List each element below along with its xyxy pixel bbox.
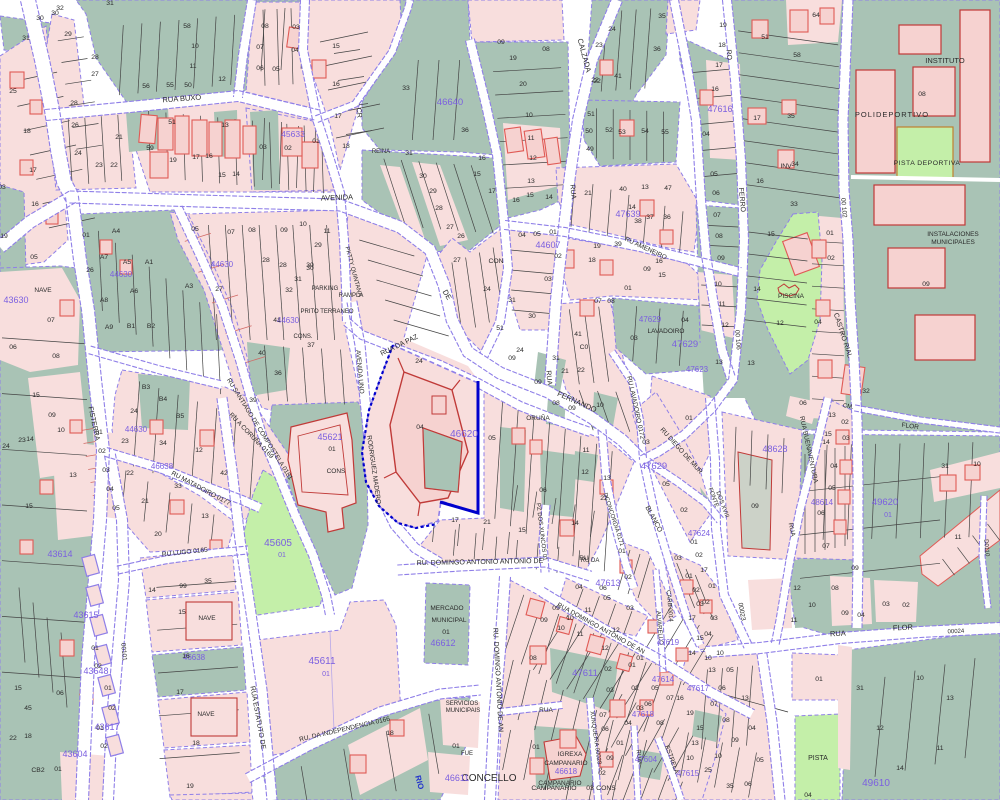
svg-text:25: 25 [9,88,17,95]
svg-text:01: 01 [826,230,834,237]
svg-text:15: 15 [178,609,186,616]
svg-text:04: 04 [575,584,583,591]
svg-text:03: 03 [882,601,890,608]
svg-text:INSTALACIONES: INSTALACIONES [927,231,979,238]
svg-text:05: 05 [191,226,199,233]
svg-text:24: 24 [2,443,10,450]
svg-text:47629: 47629 [641,461,667,472]
svg-text:14: 14 [571,520,579,527]
svg-text:11: 11 [584,607,591,614]
svg-text:09: 09 [643,266,651,273]
svg-text:01: 01 [708,583,716,590]
svg-text:04: 04 [518,232,526,239]
svg-text:28: 28 [70,100,78,107]
svg-text:44630: 44630 [125,425,148,434]
svg-text:26: 26 [86,267,94,274]
svg-text:36: 36 [461,127,469,134]
svg-text:05: 05 [651,685,659,692]
svg-text:35: 35 [787,113,795,120]
svg-text:12: 12 [218,76,226,83]
svg-text:15: 15 [25,503,33,510]
svg-text:09: 09 [851,565,859,572]
svg-text:16: 16 [512,197,520,204]
svg-text:15: 15 [696,635,704,642]
svg-text:17: 17 [715,62,723,69]
svg-text:37: 37 [646,214,654,221]
svg-text:41: 41 [574,331,582,338]
svg-text:36: 36 [663,214,671,221]
svg-text:26: 26 [457,233,465,240]
svg-text:20: 20 [519,81,527,88]
svg-text:01: 01 [815,676,823,683]
svg-text:03: 03 [102,467,110,474]
svg-text:A5: A5 [123,259,132,266]
svg-text:02: 02 [692,587,700,594]
svg-text:24: 24 [516,347,524,354]
svg-text:PARKING: PARKING [312,286,339,292]
svg-text:16: 16 [31,201,39,208]
svg-text:04: 04 [857,612,865,619]
svg-text:38: 38 [634,218,642,225]
svg-text:02: 02 [108,705,116,712]
svg-text:15: 15 [824,431,832,438]
svg-text:46611: 46611 [445,773,469,783]
svg-text:45633: 45633 [281,129,305,139]
svg-text:31: 31 [941,463,949,470]
svg-text:16: 16 [182,653,190,660]
svg-text:IGREXA: IGREXA [558,751,583,758]
svg-text:11: 11 [527,135,534,142]
svg-text:AVENIDA: AVENIDA [321,192,354,202]
svg-text:47629: 47629 [672,339,698,350]
svg-text:43630: 43630 [3,295,28,305]
svg-text:00024: 00024 [947,629,965,636]
svg-text:17: 17 [488,188,496,195]
svg-text:01: 01 [532,744,540,751]
svg-text:MUNICIPAL: MUNICIPAL [432,617,467,624]
svg-text:02: 02 [695,552,703,559]
svg-text:03: 03 [586,785,594,792]
svg-text:01: 01 [312,138,320,145]
svg-text:13: 13 [741,695,749,702]
svg-text:05: 05 [603,595,611,602]
svg-text:07: 07 [666,695,674,702]
svg-text:47: 47 [664,185,672,192]
svg-text:A1: A1 [145,259,154,266]
svg-text:64: 64 [812,12,820,19]
svg-text:12: 12 [776,320,784,327]
svg-text:MERCADO: MERCADO [430,605,463,612]
svg-text:A8: A8 [100,297,109,304]
svg-text:23: 23 [95,162,103,169]
svg-text:52: 52 [605,127,613,134]
svg-text:04: 04 [704,631,712,638]
svg-text:39: 39 [614,241,622,248]
svg-text:44630: 44630 [110,270,133,279]
svg-text:47615: 47615 [677,769,700,778]
svg-text:22: 22 [600,495,608,502]
svg-text:02: 02 [702,599,710,606]
svg-text:04: 04 [748,725,756,732]
svg-text:05: 05 [710,171,718,178]
svg-text:09: 09 [731,737,739,744]
svg-text:28: 28 [262,257,270,264]
svg-text:15: 15 [32,392,40,399]
svg-text:12: 12 [612,627,620,634]
svg-text:47616: 47616 [707,104,732,114]
svg-text:30: 30 [306,262,314,269]
svg-text:43614: 43614 [47,549,72,559]
svg-text:18: 18 [342,143,350,150]
svg-text:22: 22 [9,735,17,742]
svg-text:RUA: RUA [539,707,553,714]
svg-text:02: 02 [902,602,910,609]
svg-text:01: 01 [54,766,62,773]
svg-text:18: 18 [24,733,32,740]
svg-text:31: 31 [552,355,560,362]
svg-text:08: 08 [529,655,537,662]
svg-text:07: 07 [822,543,830,550]
svg-text:03: 03 [636,705,644,712]
svg-text:13: 13 [221,122,229,129]
svg-text:09: 09 [606,755,614,762]
svg-text:27: 27 [91,71,99,78]
svg-text:RUA: RUA [568,184,576,200]
svg-text:MUNICIPAIS: MUNICIPAIS [446,708,481,714]
svg-text:02: 02 [94,663,102,670]
svg-text:A4: A4 [112,228,121,235]
svg-text:15: 15 [767,231,775,238]
svg-text:11: 11 [582,447,589,454]
svg-text:09: 09 [552,605,560,612]
svg-text:16: 16 [332,81,340,88]
svg-text:17: 17 [688,615,696,622]
svg-text:44630: 44630 [211,260,234,269]
svg-text:13: 13 [828,412,836,419]
svg-text:49620: 49620 [872,497,898,508]
svg-text:34: 34 [791,161,799,168]
svg-text:RUA: RUA [830,629,846,639]
svg-text:15: 15 [518,527,526,534]
svg-text:06: 06 [817,510,825,517]
svg-text:19: 19 [186,783,194,790]
svg-text:51: 51 [761,34,769,41]
svg-text:22: 22 [110,162,118,169]
svg-text:10: 10 [714,281,722,288]
svg-text:01: 01 [91,645,99,652]
svg-text:04: 04 [830,463,838,470]
svg-text:09: 09 [497,39,505,46]
svg-text:02: 02 [631,685,639,692]
svg-text:23: 23 [595,42,603,49]
svg-text:CONS: CONS [327,468,346,475]
svg-text:NAVE: NAVE [34,287,52,294]
svg-text:16: 16 [478,155,486,162]
svg-text:03: 03 [0,184,6,191]
svg-text:PRITO TERRANEO: PRITO TERRANEO [300,309,353,315]
svg-text:12: 12 [876,725,884,732]
svg-text:10: 10 [916,675,924,682]
svg-text:08: 08 [656,720,664,727]
svg-text:28: 28 [91,54,99,61]
svg-text:01: 01 [628,662,636,669]
svg-text:03: 03 [642,439,650,446]
svg-text:12: 12 [721,322,729,329]
svg-text:05: 05 [756,757,764,764]
svg-text:24: 24 [415,358,423,365]
svg-text:46620: 46620 [450,429,478,440]
svg-text:46640: 46640 [437,97,463,108]
svg-text:29: 29 [429,188,437,195]
svg-text:07: 07 [227,229,235,236]
svg-text:10: 10 [973,461,981,468]
svg-text:51: 51 [496,325,504,332]
svg-text:01: 01 [616,740,624,747]
svg-text:43615: 43615 [73,610,98,620]
svg-text:20: 20 [154,531,162,538]
svg-text:POLIDEPORTIVO: POLIDEPORTIVO [855,110,929,119]
svg-text:RO: RO [725,49,733,61]
svg-text:16: 16 [676,695,684,702]
svg-text:10: 10 [808,602,816,609]
svg-text:01: 01 [278,552,286,559]
svg-text:10: 10 [191,43,199,50]
svg-text:35: 35 [726,783,734,790]
svg-text:43604: 43604 [62,749,87,759]
svg-text:PISCINA: PISCINA [778,293,805,300]
svg-text:CONCELLO: CONCELLO [461,773,516,784]
svg-text:37: 37 [307,342,315,349]
svg-text:FLOR: FLOR [893,622,914,632]
svg-text:04: 04 [291,47,299,54]
svg-text:07: 07 [713,212,721,219]
svg-text:55: 55 [661,129,669,136]
svg-text:46618: 46618 [555,767,578,776]
svg-text:17: 17 [753,115,761,122]
svg-text:21: 21 [115,134,123,141]
svg-text:03: 03 [674,555,682,562]
svg-text:06: 06 [56,690,64,697]
svg-text:99: 99 [179,583,187,590]
svg-text:31: 31 [106,0,114,7]
svg-text:19: 19 [593,243,601,250]
svg-text:04: 04 [804,792,812,799]
svg-text:21: 21 [483,519,491,526]
svg-text:10: 10 [704,655,712,662]
svg-text:07: 07 [599,712,607,719]
svg-text:35: 35 [658,13,666,20]
svg-text:09: 09 [717,255,725,262]
svg-text:RUA: RUA [544,370,552,386]
svg-text:15: 15 [14,685,22,692]
svg-text:11: 11 [936,745,943,752]
svg-text:FUE: FUE [461,751,473,757]
svg-text:06: 06 [799,400,807,407]
svg-text:50: 50 [184,82,192,89]
svg-text:02: 02 [624,574,632,581]
svg-text:10: 10 [557,625,565,632]
svg-text:06: 06 [601,726,609,733]
svg-text:36: 36 [274,370,282,377]
svg-text:59: 59 [146,145,154,152]
svg-text:25: 25 [704,767,712,774]
svg-text:48614: 48614 [811,498,834,507]
svg-text:12: 12 [581,469,589,476]
svg-text:24: 24 [130,408,138,415]
svg-text:16: 16 [655,258,663,265]
svg-text:SERVICIOS: SERVICIOS [446,701,479,707]
svg-text:05: 05 [488,435,496,442]
svg-text:47624: 47624 [688,529,711,538]
svg-text:33: 33 [402,85,410,92]
svg-text:13: 13 [708,667,716,674]
svg-text:17: 17 [700,567,708,574]
svg-text:19: 19 [169,157,177,164]
svg-text:58: 58 [183,23,191,30]
svg-text:C0: C0 [580,344,589,351]
svg-text:22: 22 [126,470,134,477]
svg-text:51: 51 [168,119,176,126]
svg-text:CAMPANARIO: CAMPANARIO [544,760,587,767]
svg-text:29: 29 [314,242,322,249]
svg-text:03: 03 [710,615,718,622]
svg-text:16: 16 [711,86,719,93]
svg-text:CONS.: CONS. [293,334,312,340]
svg-text:08: 08 [52,353,60,360]
svg-text:19: 19 [686,710,694,717]
svg-text:14: 14 [232,171,240,178]
svg-text:13: 13 [715,359,723,366]
svg-text:02: 02 [98,448,106,455]
svg-text:15: 15 [526,192,534,199]
svg-text:03: 03 [842,435,850,442]
svg-text:53: 53 [618,129,626,136]
svg-text:06: 06 [644,701,652,708]
svg-text:05: 05 [30,254,38,261]
svg-text:NAVE: NAVE [198,615,216,622]
svg-text:12: 12 [529,155,537,162]
svg-text:13: 13 [747,360,755,367]
svg-text:32: 32 [862,388,870,395]
svg-text:08: 08 [918,91,926,98]
svg-text:19: 19 [0,233,8,240]
svg-text:31: 31 [856,685,864,692]
svg-text:06: 06 [599,585,607,592]
svg-text:08: 08 [607,298,615,305]
svg-text:09: 09 [540,617,548,624]
svg-text:08: 08 [552,400,560,407]
svg-text:09: 09 [508,355,516,362]
svg-text:NAVE: NAVE [197,711,215,718]
svg-text:02: 02 [100,743,108,750]
svg-text:10: 10 [714,753,722,760]
svg-text:21: 21 [584,190,592,197]
svg-text:28: 28 [279,262,287,269]
svg-text:02: 02 [841,419,849,426]
svg-text:LAVADOIRO: LAVADOIRO [648,328,685,335]
svg-text:49: 49 [586,146,594,153]
svg-text:17: 17 [29,167,37,174]
svg-text:21: 21 [141,498,149,505]
svg-text:11: 11 [954,534,961,541]
svg-text:03: 03 [630,335,638,342]
svg-text:03: 03 [626,605,634,612]
svg-text:09: 09 [534,379,542,386]
svg-text:50: 50 [585,128,593,135]
svg-text:10: 10 [686,755,694,762]
svg-text:14: 14 [753,286,761,293]
svg-text:12: 12 [195,447,203,454]
svg-text:46638: 46638 [151,462,174,471]
svg-text:14: 14 [148,587,156,594]
svg-text:47611: 47611 [572,668,598,679]
svg-text:02: 02 [554,253,562,260]
svg-text:14: 14 [545,194,553,201]
svg-text:CR: CR [355,108,363,119]
svg-text:15: 15 [473,171,481,178]
svg-text:A3: A3 [185,283,194,290]
svg-text:27: 27 [215,286,223,293]
svg-text:13: 13 [201,513,209,520]
svg-text:09: 09 [48,412,56,419]
svg-text:08: 08 [722,717,730,724]
svg-text:09: 09 [280,227,288,234]
svg-text:54: 54 [641,128,649,135]
svg-text:10: 10 [57,427,65,434]
svg-text:09: 09 [841,610,849,617]
svg-text:12: 12 [601,645,609,652]
svg-text:MUNICIPALES: MUNICIPALES [931,239,975,246]
svg-text:58: 58 [793,52,801,59]
svg-text:24: 24 [483,286,491,293]
svg-text:02: 02 [598,770,606,777]
svg-text:23: 23 [18,437,26,444]
svg-text:30: 30 [36,15,44,22]
svg-text:47617: 47617 [687,684,710,693]
svg-text:56: 56 [142,83,150,90]
svg-text:42: 42 [220,470,228,477]
svg-text:18: 18 [718,42,726,49]
svg-text:13: 13 [946,695,954,702]
svg-text:RU: RU [579,555,589,562]
svg-text:01: 01 [685,415,693,422]
svg-text:02: 02 [284,145,292,152]
svg-text:ORUÑA: ORUÑA [526,413,550,422]
svg-text:18: 18 [588,257,596,264]
svg-text:48628: 48628 [762,444,787,454]
svg-text:49610: 49610 [862,778,890,789]
svg-text:05: 05 [533,231,541,238]
svg-text:01: 01 [95,429,103,436]
svg-text:08: 08 [831,585,839,592]
svg-text:01: 01 [322,671,330,678]
svg-text:18: 18 [23,128,31,135]
svg-text:33: 33 [174,483,182,490]
svg-text:01: 01 [884,512,892,519]
svg-text:10: 10 [716,650,724,657]
svg-text:06: 06 [712,190,720,197]
svg-text:13: 13 [691,740,699,747]
svg-text:31: 31 [294,276,302,283]
svg-text:01: 01 [690,539,698,546]
svg-text:06: 06 [744,781,752,788]
svg-text:30: 30 [528,313,536,320]
svg-text:26: 26 [71,122,79,129]
svg-text:B3: B3 [142,384,151,391]
svg-text:06: 06 [9,344,17,351]
svg-text:13: 13 [69,472,77,479]
svg-text:01: 01 [636,655,644,662]
